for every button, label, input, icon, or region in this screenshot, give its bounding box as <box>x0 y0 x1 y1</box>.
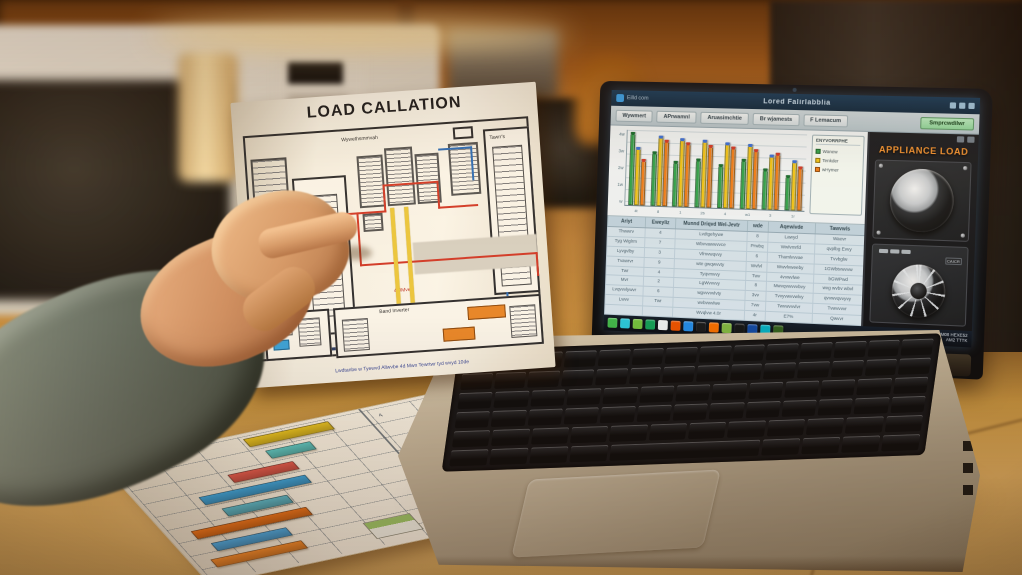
table-cell: Waevr <box>814 234 864 245</box>
keyboard-key <box>854 397 890 414</box>
screw-icon <box>876 230 880 234</box>
table-header-cell: Tawvwls <box>814 223 864 235</box>
table-cell: 8 <box>746 232 767 242</box>
chart-bar <box>729 146 736 208</box>
keyboard-key <box>782 400 818 417</box>
keyboard-key <box>733 344 766 361</box>
chart-plot-area: 4t812b4w131r <box>624 130 807 212</box>
taskbar-app-icon[interactable] <box>734 323 744 333</box>
keyboard-key <box>494 372 527 389</box>
taskbar-app-icon[interactable] <box>658 320 668 330</box>
appliance-panel-title: APPLIANCE LOAD <box>875 144 972 157</box>
keyboard-key <box>603 387 639 404</box>
paper-cell-note: 4 <box>377 413 384 418</box>
keyboard-key <box>709 402 745 419</box>
chart-bar <box>640 159 646 206</box>
toolbar-tab-1[interactable]: APrwamnl <box>657 110 697 123</box>
keyboard-key <box>458 392 494 409</box>
keyboard-key <box>712 383 748 400</box>
keyboard-key <box>901 339 934 356</box>
table-cell: Twr <box>605 266 643 276</box>
keyboard-key <box>761 438 800 455</box>
x-axis-label: 4 <box>717 211 734 217</box>
legend-swatch <box>815 149 820 154</box>
junction-box <box>362 213 383 232</box>
toolbar-tab-4[interactable]: F Lemacum <box>803 114 848 127</box>
trackpad[interactable] <box>511 470 721 559</box>
table-cell: Lvqvvvlywvr <box>605 285 643 295</box>
legend-label: Tenkder <box>822 158 838 163</box>
keyboard-key <box>801 437 840 454</box>
y-axis-tick: 2w <box>613 165 624 170</box>
keyboard-key <box>632 348 665 365</box>
y-axis-tick: 1w <box>612 182 623 187</box>
dial-button[interactable] <box>890 249 899 253</box>
keyboard-key <box>629 367 662 384</box>
keyboard-key <box>784 381 820 398</box>
legend-item: Wanew <box>815 149 860 155</box>
load-data-table: AriytEweylizMunnd Driqvd Wel-JevtrwdeAqe… <box>604 216 865 326</box>
diagram-label-bottom-panel: Band Inverter <box>379 307 409 315</box>
under-cabinet-light <box>150 22 570 48</box>
table-header-cell: Aqewivde <box>767 222 814 234</box>
table-header-cell: Ariyt <box>607 216 645 227</box>
dial-buttons <box>879 249 911 254</box>
keyboard-key <box>528 371 561 388</box>
bar-group: 3 <box>762 133 782 210</box>
keyboard-key <box>818 398 854 415</box>
dial-knob[interactable] <box>910 283 927 300</box>
component-box <box>509 304 537 338</box>
table-header-cell: Eweyliz <box>645 217 676 228</box>
taskbar-app-icon[interactable] <box>683 321 693 331</box>
webcam-icon <box>793 88 797 92</box>
table-cell: 9 <box>643 258 674 268</box>
app-name: Eilld com <box>627 95 649 101</box>
chart-bar <box>706 145 713 208</box>
x-axis-label: 2b <box>694 210 711 216</box>
table-cell: E7% <box>764 312 811 323</box>
table-cell: 4 <box>644 228 675 238</box>
appliance-load-panel: APPLIANCE LOAD CAIC <box>861 132 979 331</box>
keyboard-key <box>834 341 867 358</box>
keyboard-key <box>649 423 688 440</box>
keyboard-key <box>730 364 763 381</box>
taskbar-app-icon[interactable] <box>709 322 719 332</box>
table-cell: 8 <box>745 281 766 291</box>
keyboard-key <box>491 410 527 427</box>
chart-bar <box>662 140 669 206</box>
appliance-dial-widget-2: CAICR <box>869 244 968 327</box>
table-cell: 6 <box>746 252 767 262</box>
toolbar-tabs: WywmertAPrwamnlAruasimchtieBr wjamestsF … <box>615 109 848 127</box>
table-cell <box>642 306 673 316</box>
taskbar-app-icon[interactable] <box>620 318 630 328</box>
table-cell: Wvqlvw 4.0r <box>672 308 744 320</box>
paper-chart-bar <box>265 441 317 459</box>
keyboard-key <box>898 358 931 375</box>
keyboard-key <box>766 343 799 360</box>
table-cell: 4r <box>744 311 765 321</box>
table-cell: Thamlvvvae <box>766 252 813 263</box>
keyboard-key <box>492 429 531 446</box>
taskbar-app-icon[interactable] <box>633 319 643 329</box>
dial-button[interactable] <box>879 249 888 253</box>
legend-label: Wanew <box>823 149 838 154</box>
appliance-dial[interactable] <box>889 168 955 233</box>
keyboard-key <box>673 404 709 421</box>
bar-group: 1 <box>672 131 691 207</box>
keyboard-key <box>846 416 885 433</box>
table-cell <box>604 305 642 315</box>
toolbar-tab-2[interactable]: Aruasimchtie <box>700 111 749 124</box>
keyboard-key <box>562 369 595 386</box>
keyboard-key <box>696 365 729 382</box>
legend-label: wHymer <box>822 167 839 173</box>
table-cell: 6 <box>642 287 673 297</box>
orange-tag <box>467 304 506 320</box>
table-cell: Lwvv <box>604 295 642 305</box>
x-axis-label: 4t <box>628 208 645 213</box>
keyboard-key <box>699 346 732 363</box>
main-area: 4w3w2w1ww 4t812b4w131r ENYVORRPHE WanewT… <box>604 125 868 326</box>
keyboard-key <box>528 409 564 426</box>
orange-tag <box>443 327 476 342</box>
dial-button[interactable] <box>901 250 910 254</box>
keyboard-key <box>857 378 893 395</box>
table-cell: Wwvlvweeby <box>766 262 813 273</box>
component-box <box>342 318 370 352</box>
keyboard-key <box>531 427 570 444</box>
bar-group: 4 <box>717 132 736 208</box>
keyboard-key <box>595 368 628 385</box>
keyboard-key <box>665 347 698 364</box>
microwave-display <box>288 62 343 84</box>
bar-group: 1r <box>785 134 805 211</box>
table-cell: 4vvwvlwe <box>766 272 813 283</box>
bar-group: w1 <box>739 133 758 209</box>
table-cell: 7 <box>644 238 675 248</box>
keyboard-key <box>600 406 636 423</box>
close-icon[interactable] <box>968 103 974 109</box>
keyboard-key <box>821 379 857 396</box>
keyboard-key <box>800 342 833 359</box>
maximize-icon[interactable] <box>959 103 965 109</box>
keyboard-key <box>598 349 631 366</box>
bar-group: 4t <box>628 130 647 206</box>
table-cell: Twv <box>745 271 766 281</box>
keyboard-key <box>570 445 609 462</box>
chart-legend: ENYVORRPHE WanewTenkderwHymer <box>809 135 864 216</box>
keyboard-key <box>530 389 566 406</box>
keyboard-key <box>865 359 898 376</box>
keyboard-key <box>806 418 845 435</box>
appliance-dial-widget-1 <box>872 159 971 241</box>
taskbar-app-icon[interactable] <box>696 322 706 332</box>
dial-label: CAICR <box>945 257 962 265</box>
legend-swatch <box>815 158 820 163</box>
keyboard-key <box>675 384 711 401</box>
keyboard-key <box>767 419 806 436</box>
chart-bar <box>774 153 781 210</box>
y-axis-tick: 3w <box>613 148 624 153</box>
diagram-label-right-panel: Tawrr's <box>489 134 505 141</box>
table-cell: Lawyd <box>767 233 814 244</box>
keyboard-key <box>570 426 609 443</box>
keyboard-key <box>688 422 727 439</box>
table-cell: 3 <box>644 248 675 258</box>
keyboard-key <box>764 362 797 379</box>
side-ports <box>963 441 973 501</box>
table-body: Thwwrv4Lvdtgehywe8LawydWaevrTyg Wiglrm7W… <box>604 227 864 326</box>
keyboard-key <box>455 411 491 428</box>
keyboard-key <box>841 436 880 453</box>
taskbar-app-icon[interactable] <box>722 323 732 333</box>
table-cell: Wvfvl <box>745 262 766 272</box>
appliance-dial[interactable] <box>891 264 946 319</box>
table-cell: 3vv <box>744 291 765 301</box>
spacebar-key <box>610 440 761 461</box>
breaker-box-2 <box>384 146 416 206</box>
taskbar-app-icon[interactable] <box>671 321 681 331</box>
table-cell: Prwbq <box>746 242 767 252</box>
keyboard-key <box>728 421 767 438</box>
x-axis-label: 1r <box>784 213 801 219</box>
keyboard-key <box>745 401 781 418</box>
table-cell: 4 <box>643 267 674 277</box>
table-cell: Lyvgvlby <box>606 246 644 256</box>
table-cell: Qwvvr <box>811 314 861 325</box>
panel-corner-icons <box>957 136 975 143</box>
keyboard-key <box>636 405 672 422</box>
speaker-icon[interactable] <box>957 136 964 142</box>
x-axis-label: 8 <box>650 209 667 215</box>
taskbar-app-icon[interactable] <box>645 319 655 329</box>
chart-bar <box>684 143 691 207</box>
x-axis-label: 1 <box>672 209 689 215</box>
keyboard-key <box>748 382 784 399</box>
window-controls <box>950 102 975 109</box>
keyboard-key <box>663 366 696 383</box>
keyboard-key <box>797 361 830 378</box>
bar-group: 2b <box>694 132 713 208</box>
screw-icon <box>879 164 883 168</box>
chart-bar <box>751 149 758 209</box>
legend-items: WanewTenkderwHymer <box>815 149 860 173</box>
keyboard-key <box>885 415 924 432</box>
toolbar-tab-0[interactable]: Wywmert <box>615 109 653 122</box>
table-cell: Mvr <box>605 276 643 286</box>
keyboard-key <box>490 448 529 465</box>
load-bar-chart: 4w3w2w1ww 4t812b4w131r ENYVORRPHE WanewT… <box>607 125 867 225</box>
keyboard-key <box>564 350 597 367</box>
keyboard-key <box>893 377 929 394</box>
y-axis-tick: w <box>612 198 623 203</box>
table-cell: qvplbg Evvy <box>814 244 864 255</box>
screw-icon <box>961 233 965 237</box>
app-icon <box>616 94 624 102</box>
table-cell: 7vw <box>744 301 765 311</box>
breaker-box-1 <box>356 155 386 209</box>
keyboard-key <box>452 430 491 447</box>
x-axis-label: w1 <box>739 212 756 218</box>
table-cell: Tvawrvr <box>606 256 644 266</box>
keyboard-key <box>564 407 600 424</box>
y-axis-tick: 4w <box>614 131 625 136</box>
table-cell: Wwlvmrfd <box>767 243 814 254</box>
meter-module <box>448 142 482 196</box>
screen-content: Eilld com Lored Falirlabblia WywmertAPrw… <box>604 90 981 347</box>
keyboard-key <box>494 391 530 408</box>
taskbar-app-icon[interactable] <box>607 318 617 328</box>
toolbar-action-button[interactable]: Smprcwdilwr <box>920 116 974 130</box>
minimize-icon[interactable] <box>950 102 956 108</box>
keyboard-key <box>450 449 489 466</box>
keyboard-key <box>530 446 569 463</box>
table-cell: Thwwrv <box>607 227 645 237</box>
paper-towel-roll <box>178 52 238 182</box>
grid-icon[interactable] <box>967 137 974 143</box>
bar-group: 8 <box>650 130 669 206</box>
keyboard-key <box>867 340 900 357</box>
table-cell: Tyg Wiglrm <box>606 237 644 247</box>
keyboard-key <box>891 396 927 413</box>
table-cell: Twr <box>642 297 673 307</box>
legend-item: Tenkder <box>815 158 860 164</box>
screen-body: 4w3w2w1ww 4t812b4w131r ENYVORRPHE WanewT… <box>604 125 979 331</box>
legend-item: wHymer <box>815 167 860 173</box>
keyboard-key <box>831 360 864 377</box>
legend-title: ENYVORRPHE <box>816 138 861 146</box>
toolbar-tab-3[interactable]: Br wjamests <box>753 113 800 126</box>
keyboard-key <box>881 434 920 451</box>
keyboard-key <box>460 373 493 390</box>
keyboard-key <box>567 388 603 405</box>
table-cell: 2 <box>643 277 674 287</box>
x-axis-label: 3 <box>762 212 779 218</box>
meter-cap <box>453 126 474 139</box>
chart-bar <box>797 166 804 210</box>
keyboard-key <box>610 425 649 442</box>
keyboard-key <box>639 386 675 403</box>
table-cell: Tvvbglw <box>813 254 863 265</box>
screw-icon <box>963 166 967 170</box>
kitchen-scene: 481S2v8hw43e Eilld com Lored Falirlabbli… <box>0 0 1022 575</box>
red-wire <box>536 252 540 276</box>
legend-swatch <box>815 167 820 172</box>
table-header-cell: wde <box>747 221 768 232</box>
